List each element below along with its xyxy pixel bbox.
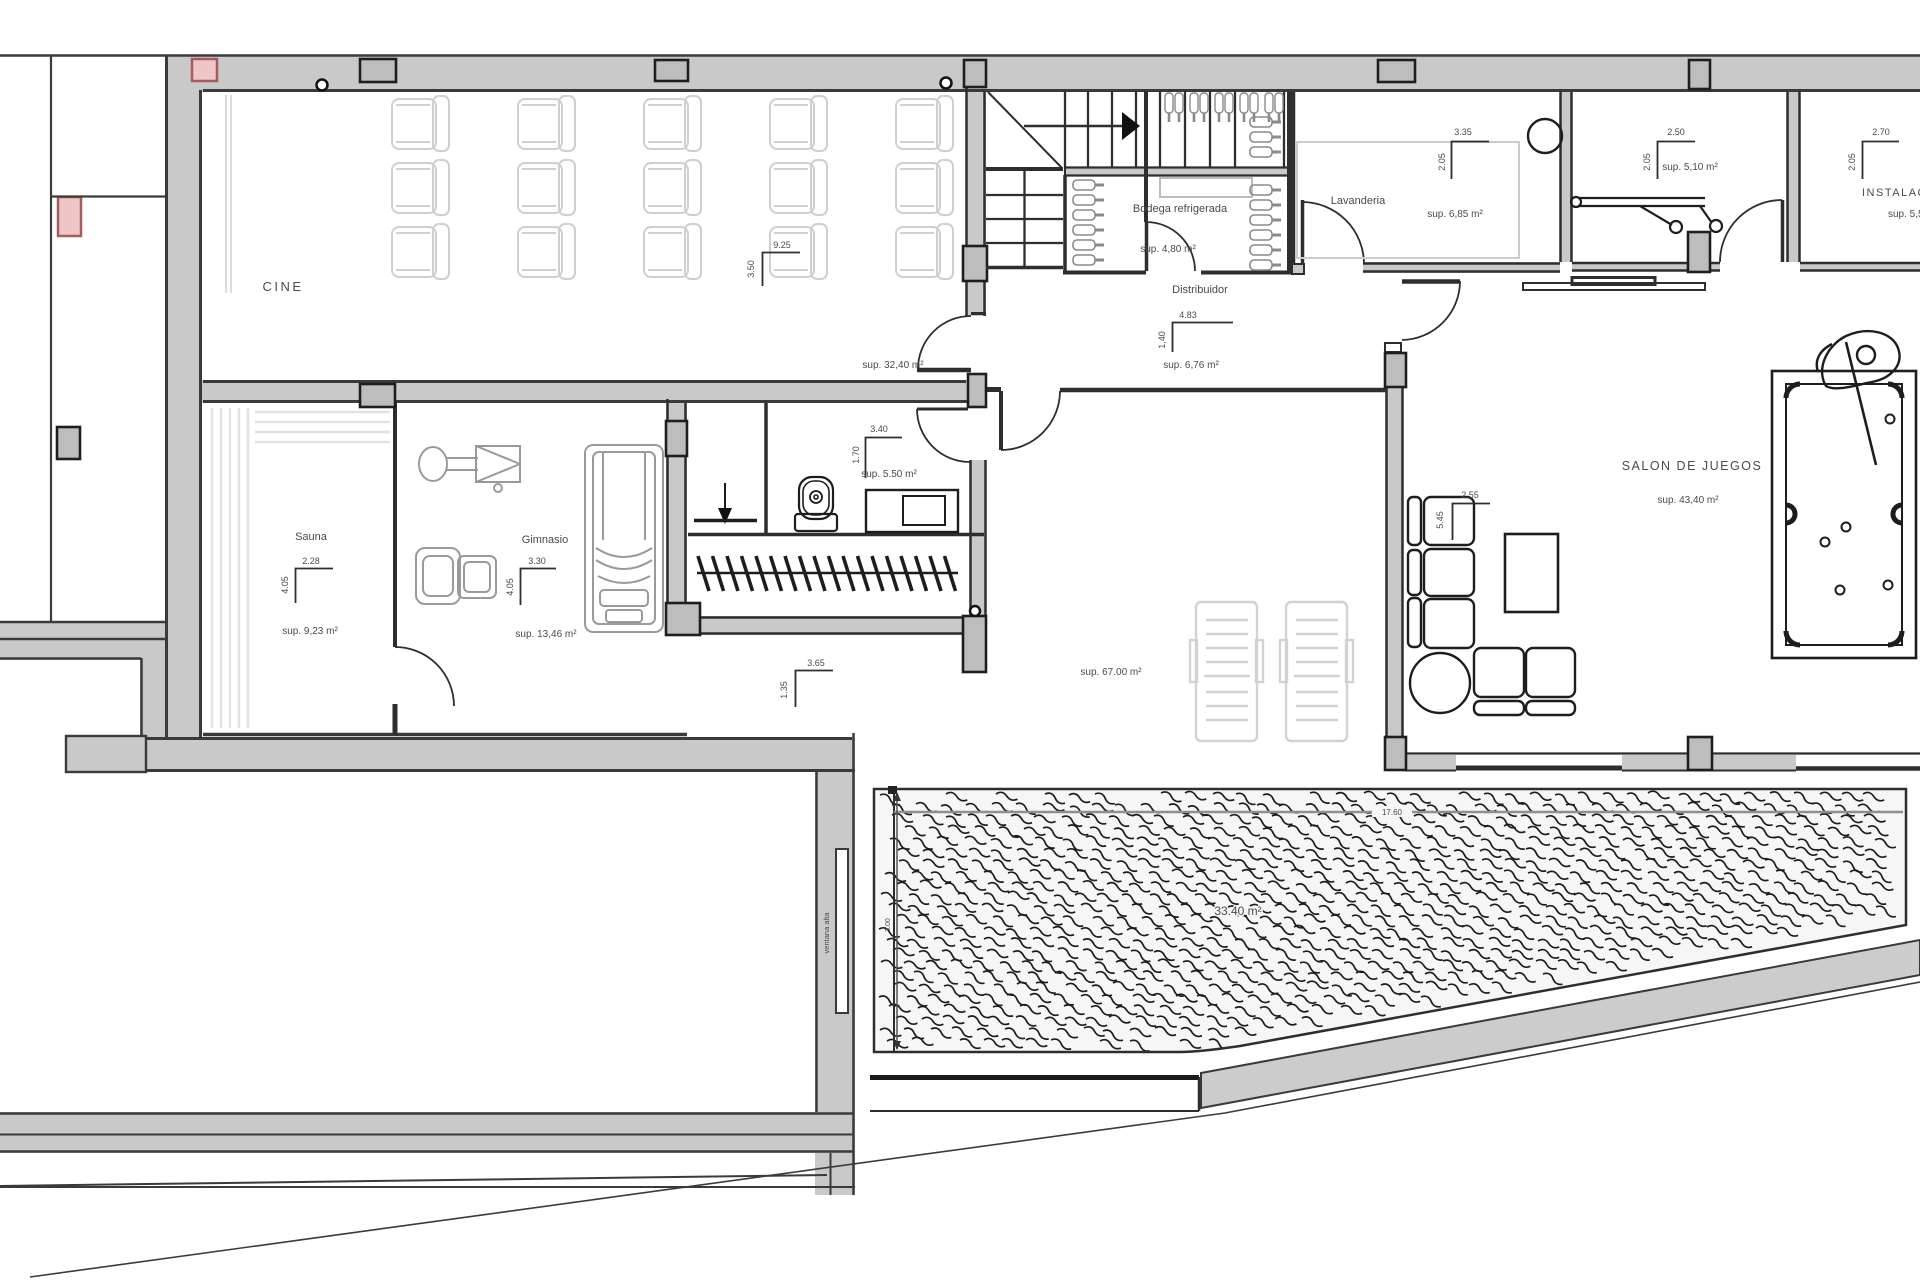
svg-text:2.05: 2.05 — [1437, 153, 1447, 171]
svg-text:sup. 6,76 m²: sup. 6,76 m² — [1163, 360, 1219, 371]
svg-text:17.60: 17.60 — [1382, 808, 1403, 817]
svg-text:3.35: 3.35 — [1454, 127, 1472, 137]
svg-text:3.00: 3.00 — [885, 918, 892, 932]
svg-text:sup. 5,10 m²: sup. 5,10 m² — [1662, 162, 1718, 173]
svg-text:4.05: 4.05 — [505, 578, 515, 596]
svg-text:1.35: 1.35 — [779, 681, 789, 699]
svg-text:5.45: 5.45 — [1435, 511, 1445, 529]
svg-text:2.05: 2.05 — [1847, 153, 1857, 171]
svg-text:ventana alta: ventana alta — [822, 912, 831, 954]
svg-text:3.30: 3.30 — [528, 556, 546, 566]
svg-text:Lavanderia: Lavanderia — [1331, 195, 1386, 207]
svg-text:sup. 5.50 m²: sup. 5.50 m² — [861, 469, 917, 480]
svg-text:Gimnasio: Gimnasio — [522, 534, 568, 546]
svg-text:sup. 13,46 m²: sup. 13,46 m² — [515, 629, 577, 640]
svg-text:INSTALACIONES: INSTALACIONES — [1862, 187, 1920, 199]
svg-text:sup. 9,23 m²: sup. 9,23 m² — [282, 626, 338, 637]
svg-text:2.55: 2.55 — [1461, 490, 1479, 500]
svg-text:SALON DE JUEGOS: SALON DE JUEGOS — [1622, 459, 1763, 473]
svg-text:2.50: 2.50 — [1667, 127, 1685, 137]
svg-text:4.05: 4.05 — [280, 576, 290, 594]
svg-text:sup. 4,80 m²: sup. 4,80 m² — [1140, 244, 1196, 255]
svg-text:sup. 67.00 m²: sup. 67.00 m² — [1080, 667, 1142, 678]
svg-text:CINE: CINE — [262, 279, 303, 294]
svg-text:4.83: 4.83 — [1179, 310, 1197, 320]
svg-text:3.50: 3.50 — [746, 260, 756, 278]
svg-text:Sauna: Sauna — [295, 531, 328, 543]
svg-text:sup. 32,40 m²: sup. 32,40 m² — [862, 360, 924, 371]
svg-text:2.05: 2.05 — [1642, 153, 1652, 171]
svg-text:2.28: 2.28 — [302, 556, 320, 566]
svg-text:1.70: 1.70 — [851, 446, 861, 464]
svg-text:sup. 43,40 m²: sup. 43,40 m² — [1657, 495, 1719, 506]
svg-text:Bodega refrigerada: Bodega refrigerada — [1133, 203, 1228, 215]
svg-text:33.40 m²: 33.40 m² — [1214, 904, 1261, 918]
svg-text:Distribuidor: Distribuidor — [1172, 284, 1228, 296]
svg-text:1,40: 1,40 — [1157, 331, 1167, 349]
svg-text:9.25: 9.25 — [773, 240, 791, 250]
svg-text:sup. 6,85 m²: sup. 6,85 m² — [1427, 209, 1483, 220]
svg-text:3.40: 3.40 — [870, 424, 888, 434]
svg-text:3.65: 3.65 — [807, 658, 825, 668]
svg-text:2.70: 2.70 — [1872, 127, 1890, 137]
svg-text:sup. 5,50 m²: sup. 5,50 m² — [1888, 209, 1920, 220]
